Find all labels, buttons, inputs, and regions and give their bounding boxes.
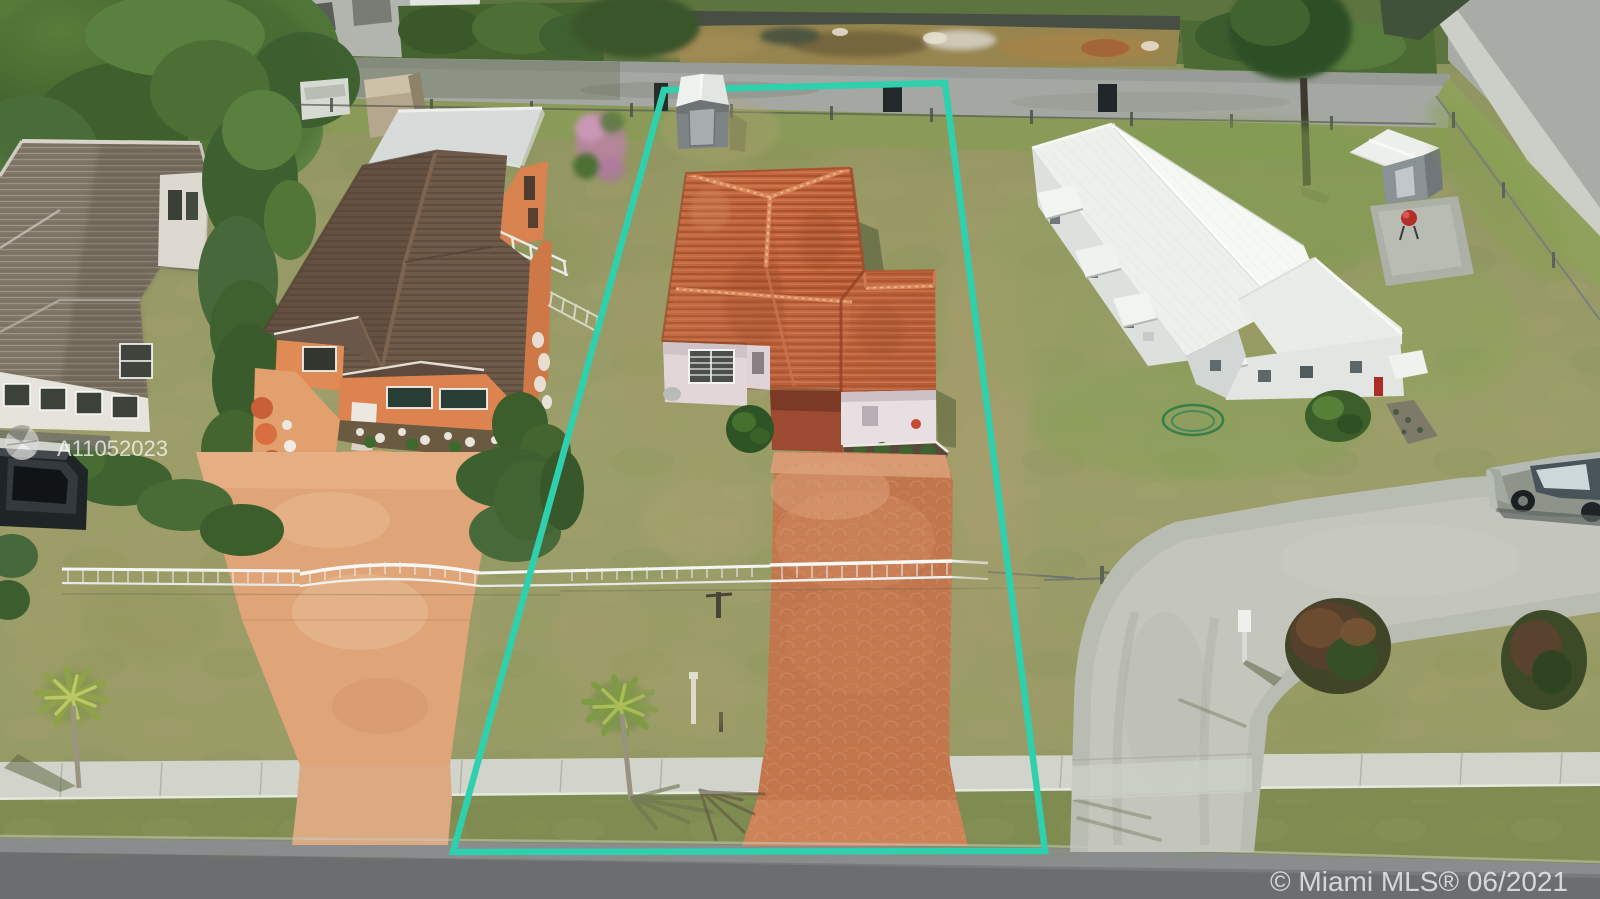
svg-text:© Miami MLS® 06/2021: © Miami MLS® 06/2021	[1270, 866, 1568, 897]
svg-text:A11052023: A11052023	[57, 436, 168, 461]
